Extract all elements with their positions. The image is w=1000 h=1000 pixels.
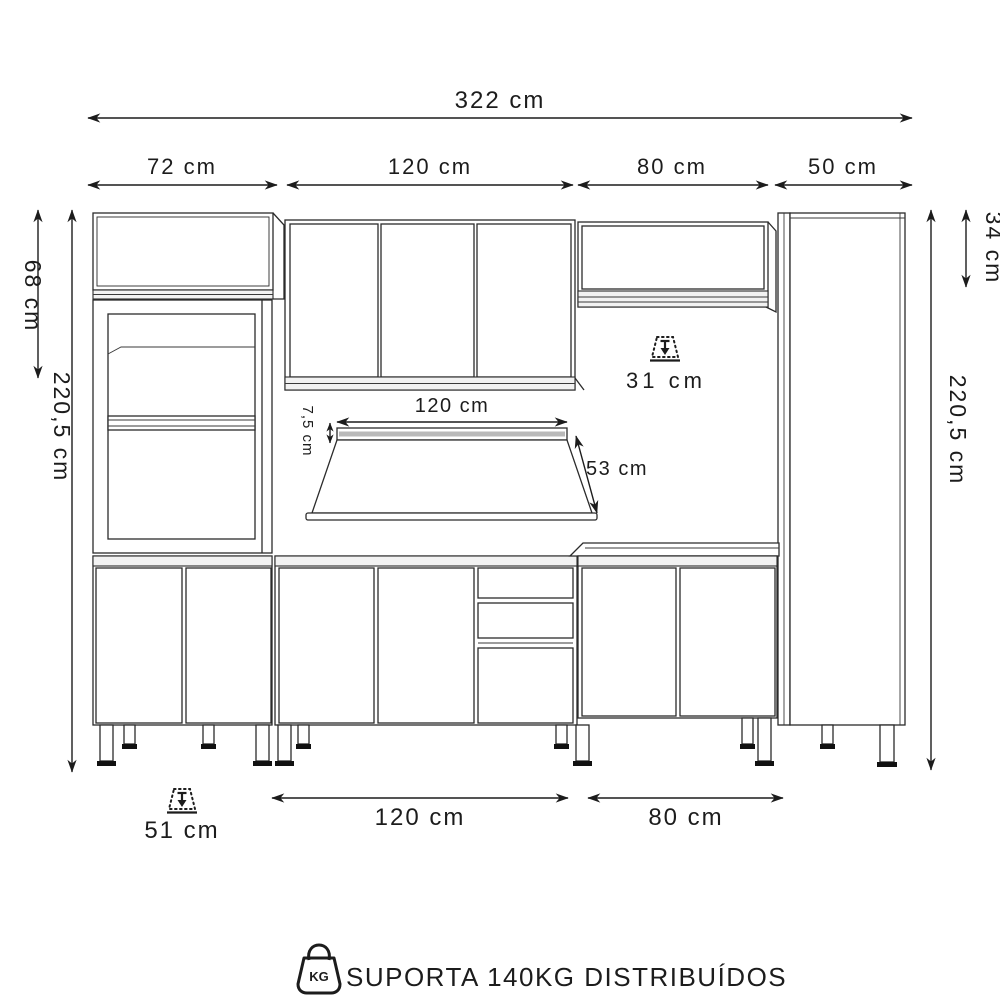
weight-capacity-note: KG SUPORTA 140KG DISTRIBUÍDOS [298,945,787,993]
right-tall-cabinet [778,213,905,725]
kg-weight-icon: KG [298,945,340,993]
left-tall-cabinet [93,213,284,725]
label-countertop-width: 120 cm [415,395,490,417]
wall-cabinet-120 [285,220,584,390]
countertop-panel [306,428,597,520]
label-height-left-upper: 68 cm [20,260,46,333]
label-depth-base: 51 cm [144,817,219,844]
depth-icon-base [167,789,197,813]
base-cabinet-80 [570,543,779,718]
diagram-canvas: 322 cm 72 cm 120 cm 80 cm 50 cm 68 cm 22… [0,0,1000,1000]
label-width-upper-cabinet: 80 cm [637,154,707,179]
depth-icon-upper [650,337,680,361]
label-width-tall-cabinet: 50 cm [808,154,878,179]
label-height-left-total: 220,5 cm [49,372,75,483]
label-height-right-upper: 34 cm [981,212,1000,285]
label-base-center-width: 120 cm [375,804,466,831]
label-countertop-depth: 53 cm [586,458,648,480]
weight-capacity-text: SUPORTA 140KG DISTRIBUÍDOS [346,962,787,992]
label-depth-upper: 31 cm [626,368,706,393]
label-width-left-cabinet: 72 cm [147,154,217,179]
label-height-right-total: 220,5 cm [945,375,971,486]
label-base-right-width: 80 cm [648,804,723,831]
label-overall-width: 322 cm [455,87,546,114]
upper-cabinet-80 [578,222,776,312]
base-cabinet-120 [275,556,577,725]
kitchen-dimension-drawing: 322 cm 72 cm 120 cm 80 cm 50 cm 68 cm 22… [0,0,1000,1000]
label-width-wall-cabinet: 120 cm [388,154,472,179]
kg-icon-label: KG [309,969,329,984]
label-countertop-thickness: 7,5 cm [299,405,316,456]
